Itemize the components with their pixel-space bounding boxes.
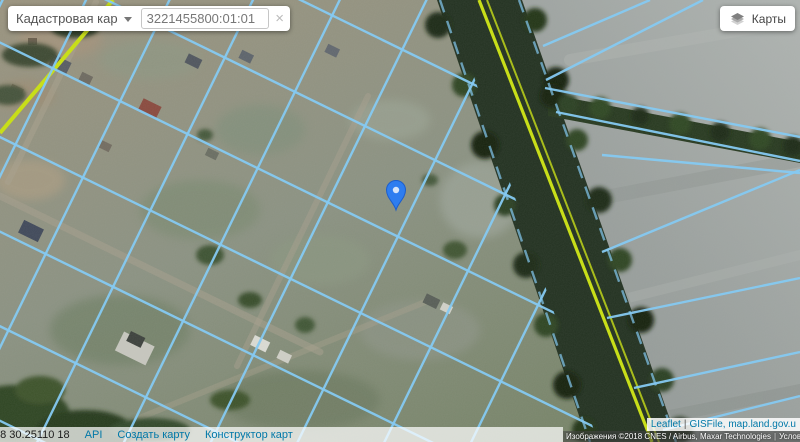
imagery-credit: Изображения ©2018 CNES / Airbus, Maxar T… (566, 432, 771, 441)
chevron-down-icon (124, 17, 132, 22)
layers-button[interactable]: Карты (720, 6, 795, 31)
clear-search-button[interactable]: × (275, 11, 284, 26)
search-bar: Кадастровая кар × (8, 6, 290, 31)
api-link[interactable]: API (85, 429, 103, 441)
coordinates-display: 88 30.25110 18 (0, 429, 70, 441)
noise-overlay (0, 0, 800, 442)
map-canvas[interactable] (0, 0, 800, 442)
map-constructor-link[interactable]: Конструктор карт (205, 429, 293, 441)
imagery-separator: | (774, 432, 776, 441)
attribution-separator: | (684, 419, 687, 430)
map-attribution: Leaflet|GISFile, map.land.gov.u (647, 418, 800, 431)
status-bar: 88 30.25110 18 API Создать карту Констру… (0, 427, 563, 442)
search-category-dropdown[interactable]: Кадастровая кар (16, 11, 132, 26)
search-category-label: Кадастровая кар (16, 11, 118, 26)
create-map-link[interactable]: Создать карту (117, 429, 190, 441)
terms-link[interactable]: Условия использования (779, 432, 800, 441)
layers-button-label: Карты (752, 12, 786, 26)
leaflet-link[interactable]: Leaflet (651, 419, 681, 430)
provider-link[interactable]: GISFile, map.land.gov.u (689, 419, 796, 430)
imagery-attribution: Изображения ©2018 CNES / Airbus, Maxar T… (563, 431, 800, 442)
search-input[interactable] (141, 8, 270, 29)
layers-icon (729, 12, 746, 26)
satellite-imagery-layer (0, 0, 800, 442)
map-viewport: Кадастровая кар × Карты 88 30.25110 18 A… (0, 0, 800, 442)
